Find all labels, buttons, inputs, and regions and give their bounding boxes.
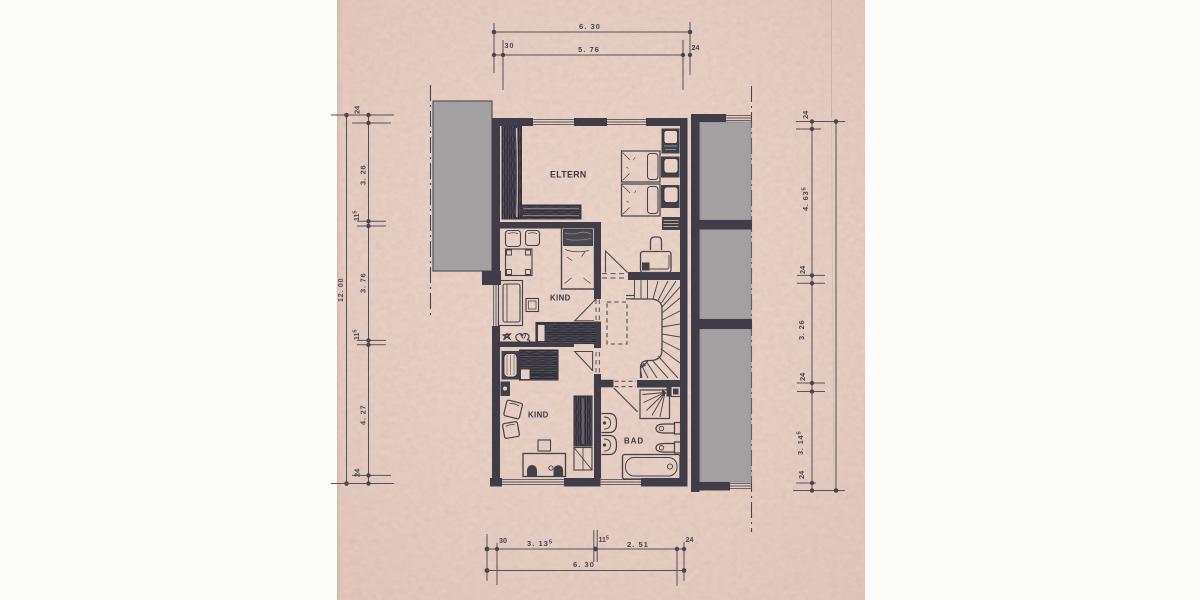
svg-text:6. 30: 6. 30 bbox=[573, 560, 595, 569]
svg-text:30: 30 bbox=[499, 536, 507, 545]
svg-text:5. 76: 5. 76 bbox=[578, 45, 600, 54]
svg-text:3. 76: 3. 76 bbox=[359, 273, 368, 293]
svg-text:24: 24 bbox=[353, 105, 362, 114]
svg-text:ELTERN: ELTERN bbox=[550, 170, 587, 180]
svg-text:24: 24 bbox=[353, 468, 362, 477]
svg-text:24: 24 bbox=[801, 110, 810, 119]
svg-text:BAD: BAD bbox=[624, 437, 644, 446]
svg-text:6. 30: 6. 30 bbox=[579, 22, 601, 31]
svg-text:4. 27: 4. 27 bbox=[359, 405, 368, 425]
svg-text:3. 26: 3. 26 bbox=[797, 320, 806, 340]
svg-text:KIND: KIND bbox=[528, 411, 549, 420]
svg-text:24: 24 bbox=[692, 43, 700, 52]
svg-text:24: 24 bbox=[798, 265, 807, 274]
svg-text:2. 51: 2. 51 bbox=[627, 540, 649, 549]
svg-text:30: 30 bbox=[505, 41, 515, 50]
svg-text:12. 00: 12. 00 bbox=[338, 278, 345, 302]
svg-text:24: 24 bbox=[798, 372, 807, 381]
svg-text:24: 24 bbox=[686, 535, 694, 544]
svg-text:KIND: KIND bbox=[550, 294, 571, 303]
svg-text:24: 24 bbox=[797, 470, 806, 479]
svg-text:3. 26: 3. 26 bbox=[359, 165, 368, 185]
